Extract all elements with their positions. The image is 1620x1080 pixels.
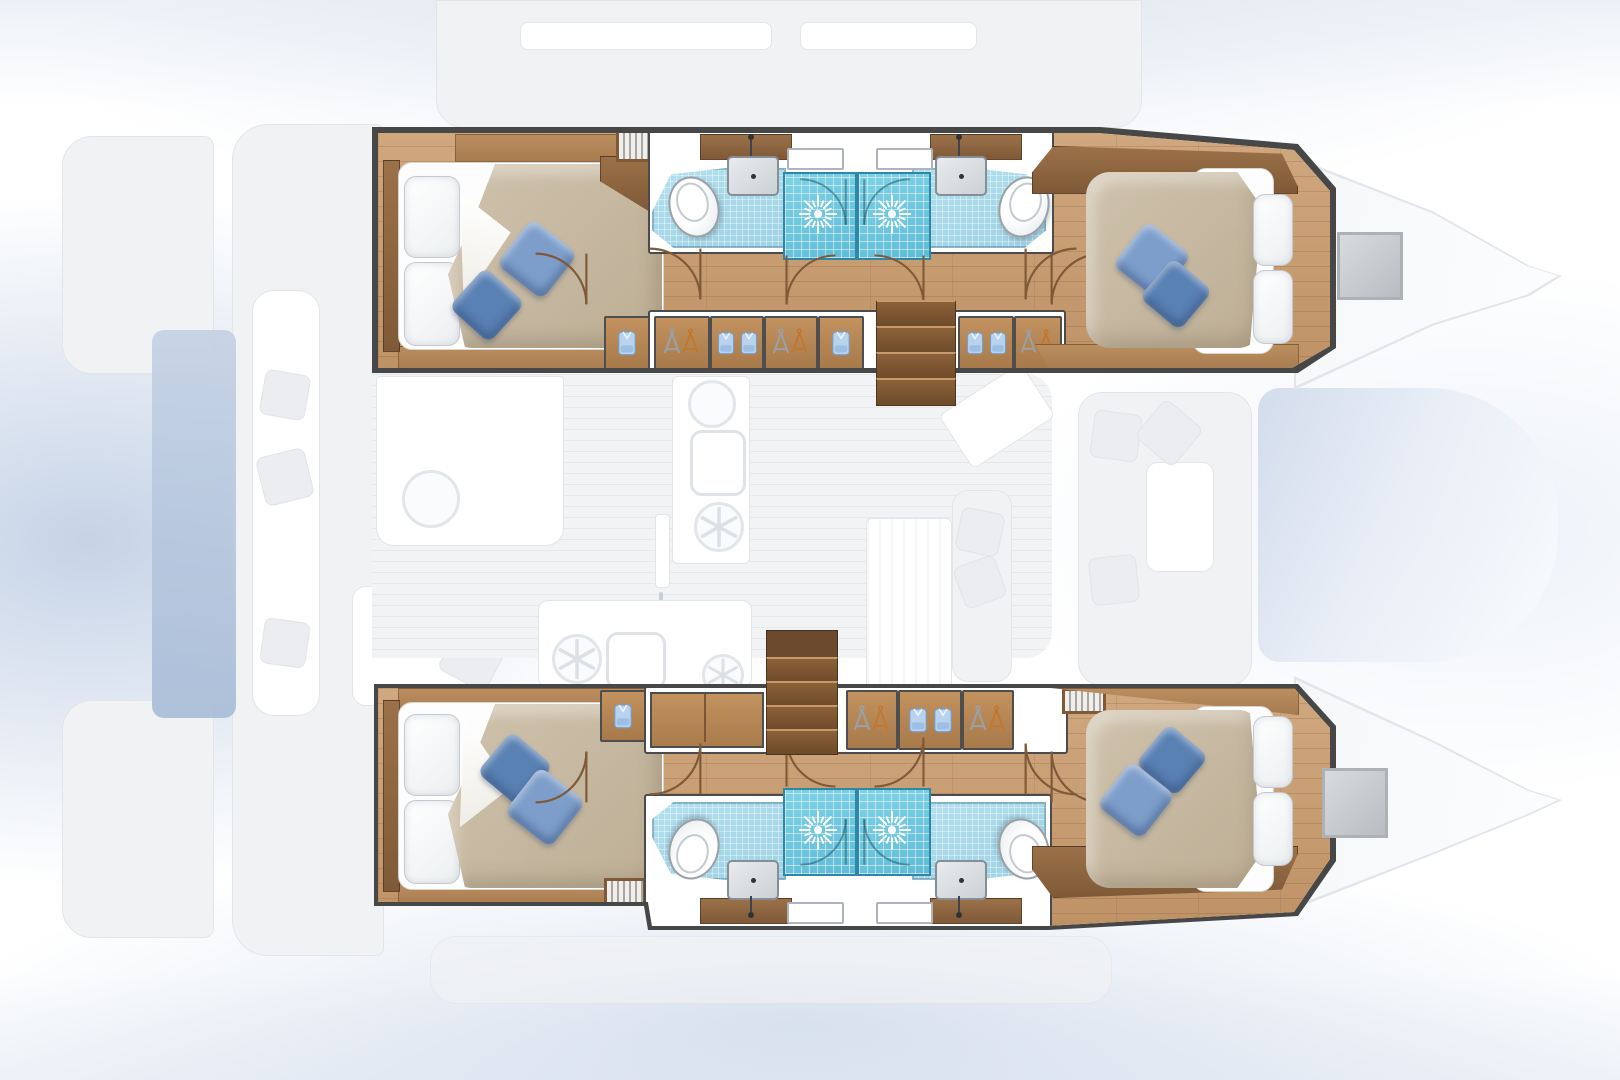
fridge-snowflake-icon	[694, 502, 744, 552]
door-swing-icon	[797, 176, 849, 228]
locker-shirt	[604, 316, 650, 370]
washbasin	[935, 156, 987, 196]
faucet-icon	[956, 134, 962, 140]
locker-shirt	[818, 316, 864, 370]
door-swing-icon	[532, 748, 590, 806]
window	[876, 148, 933, 170]
bench-pillow-ghost	[258, 368, 311, 421]
washbasin	[935, 860, 987, 900]
door-swing-icon	[783, 252, 839, 308]
pillow	[1253, 194, 1293, 266]
galley-sink-icon	[606, 632, 666, 690]
faucet-icon	[956, 912, 962, 918]
pillow	[404, 176, 460, 258]
companionway-landing	[766, 630, 838, 659]
washbasin	[727, 156, 779, 196]
door-swing-icon	[861, 176, 913, 228]
door-swing-icon	[861, 816, 913, 868]
companionway-steps	[766, 657, 838, 684]
window	[787, 902, 844, 924]
wardrobe-hangers	[764, 316, 818, 370]
door-swing-icon	[646, 245, 704, 303]
faucet-icon	[958, 896, 960, 912]
pillow	[1253, 270, 1293, 344]
coachroof-ghost	[436, 0, 1142, 128]
lounge-pillow-ghost	[1088, 554, 1141, 607]
pillow	[1253, 792, 1293, 866]
companionway-steps	[876, 300, 956, 329]
wardrobe-hangers	[654, 316, 710, 370]
faucet-icon	[750, 896, 752, 912]
companionway-steps	[876, 352, 956, 381]
deck-hatch	[1337, 232, 1403, 300]
door-swing-icon	[646, 740, 704, 798]
locker-shirt	[600, 690, 646, 742]
cutlery-icon	[688, 380, 736, 428]
faucet-icon	[750, 140, 752, 156]
bench-pillow-ghost	[954, 506, 1006, 558]
door-swing-icon	[532, 250, 590, 308]
vanity-shelf	[700, 898, 792, 924]
lounge-pillow-ghost	[1089, 409, 1143, 463]
pillow	[404, 714, 460, 796]
transom-starboard-ghost	[62, 700, 214, 938]
roof-hatch-ghost	[800, 22, 977, 50]
cabinet-divider	[704, 694, 706, 742]
deck-hatch	[1322, 768, 1388, 838]
aft-deck-lower-ghost	[430, 936, 1112, 1004]
galley-sink-icon	[690, 430, 746, 496]
bench-pillow-ghost	[259, 617, 311, 669]
window	[876, 902, 933, 924]
window	[787, 148, 844, 170]
stove-ghost	[402, 470, 460, 528]
companionway-steps	[876, 326, 956, 355]
stern-platform-blue	[152, 330, 236, 718]
wardrobe-hangers	[962, 690, 1014, 750]
washbasin	[727, 860, 779, 900]
galley-counter-ghost	[376, 376, 564, 546]
catamaran-floorplan	[0, 0, 1620, 1080]
wardrobe-shirts	[958, 316, 1014, 370]
lounge-table-ghost	[1146, 462, 1214, 572]
pillow	[1253, 716, 1293, 788]
roof-hatch-ghost	[520, 22, 772, 50]
companionway-steps	[766, 705, 838, 732]
vanity-shelf	[930, 898, 1022, 924]
companionway-steps	[876, 378, 956, 406]
sliding-door-ghost	[655, 514, 670, 588]
companionway-steps	[766, 729, 838, 755]
companionway-steps	[766, 681, 838, 708]
door-swing-icon	[797, 816, 849, 868]
door-swing-icon	[871, 734, 927, 790]
trampoline	[1258, 388, 1558, 662]
faucet-icon	[748, 134, 754, 140]
faucet-icon	[958, 140, 960, 156]
wardrobe-shirts	[710, 316, 764, 370]
fridge-snowflake-icon	[552, 634, 602, 684]
faucet-icon	[748, 912, 754, 918]
